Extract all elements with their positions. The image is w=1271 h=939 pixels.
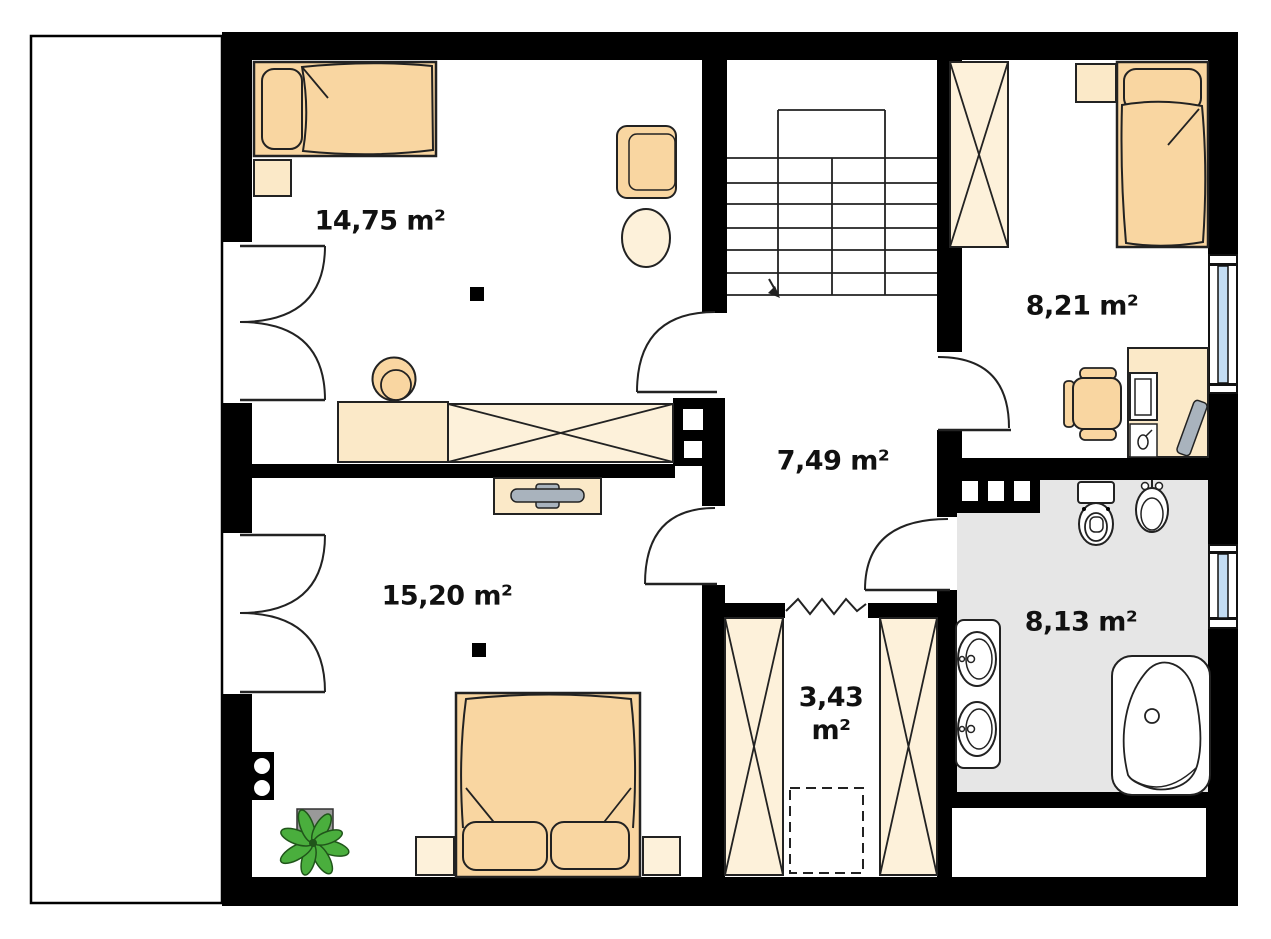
closet-area-label: 3,43 m²: [799, 681, 864, 747]
staircase: [727, 110, 937, 298]
wall-left-c: [222, 694, 252, 878]
wall-stair-left: [702, 60, 727, 313]
wardrobe-icon: [725, 618, 783, 875]
nightstand-icon: [416, 837, 454, 875]
nightstand-icon: [254, 160, 291, 196]
vent-opening: [988, 481, 1004, 501]
bedroom2-area-label: 8,21 m²: [1026, 290, 1138, 323]
wall-closet-stub-left: [725, 603, 785, 618]
window-bathroom: [1209, 545, 1237, 628]
vent-opening: [1014, 481, 1030, 501]
hallway-area-label: 7,49 m²: [777, 445, 889, 478]
desk-icon: [338, 402, 448, 462]
eaves-void: [952, 808, 1206, 877]
wall-bath-left-a: [937, 480, 957, 517]
bedroom1-furniture: [254, 62, 676, 462]
open-passage-zigzag: [786, 599, 866, 614]
wall-bath-left-b: [937, 590, 957, 792]
door-bedroom3: [645, 508, 717, 584]
double-bed-icon: [456, 693, 640, 877]
room-marker-dot: [472, 643, 486, 657]
nightstand-icon: [1076, 64, 1116, 102]
double-washbasin-icon: [956, 620, 1000, 768]
wall-right-b: [1208, 393, 1238, 545]
single-bed-icon: [1117, 62, 1208, 247]
plant-icon: [277, 808, 350, 877]
door-bedroom1: [637, 312, 717, 392]
bedroom1-area-label: 14,75 m²: [315, 205, 446, 238]
door-bedroom2: [938, 357, 1011, 430]
wall-right-c: [1208, 628, 1238, 794]
bathtub-icon: [1112, 656, 1210, 795]
door-bathroom: [865, 519, 950, 590]
wall-right-a: [1208, 60, 1238, 255]
balcony-door-bedroom3: [240, 535, 325, 692]
chimney-flue-opening: [683, 409, 703, 430]
bedroom2-furniture: [950, 62, 1208, 457]
nightstand-icon: [643, 837, 680, 875]
window-bedroom2: [1209, 255, 1237, 393]
wall-bottom-left: [222, 877, 962, 906]
appliance-dashed-outline: [790, 788, 863, 873]
wall-left-a: [222, 60, 252, 242]
wall-left-b: [222, 403, 252, 533]
chimney-flue-opening: [684, 441, 702, 458]
wardrobe-icon: [950, 62, 1008, 247]
floor-plan: 14,75 m² 8,21 m² 7,49 m² 15,20 m² 3,43 m…: [0, 0, 1271, 939]
wardrobe-icon: [448, 404, 673, 462]
toilet-icon: [1078, 482, 1114, 545]
wall-hall-west-b: [702, 585, 725, 878]
balcony-door-bedroom1: [240, 246, 325, 400]
closet-area-unit: m²: [799, 714, 864, 747]
floor-plan-drawing: [0, 0, 1271, 939]
office-chair-icon: [1064, 368, 1121, 440]
bedroom3-furniture: [250, 478, 680, 877]
wall-mid-horizontal: [250, 464, 675, 478]
room-marker-dot: [470, 287, 484, 301]
closet-area-value: 3,43: [799, 681, 864, 714]
bathroom-area-label: 8,13 m²: [1025, 606, 1137, 639]
chair-icon: [373, 358, 416, 401]
wall-top: [222, 32, 1238, 60]
monitor-icon: [1130, 373, 1157, 420]
single-bed-icon: [254, 62, 436, 156]
bedroom3-area-label: 15,20 m²: [382, 580, 513, 613]
vent-opening: [962, 481, 978, 501]
side-table-icon: [622, 209, 670, 267]
chimney-flues-icon: [250, 752, 274, 800]
mouse-icon: [1130, 424, 1157, 457]
terrace-outline: [31, 36, 222, 903]
wardrobe-icon: [880, 618, 937, 875]
wall-closet-stub-right: [868, 603, 937, 618]
tv-cabinet-icon: [494, 478, 601, 514]
wall-hall-west-a: [702, 466, 725, 506]
armchair-icon: [617, 126, 676, 198]
